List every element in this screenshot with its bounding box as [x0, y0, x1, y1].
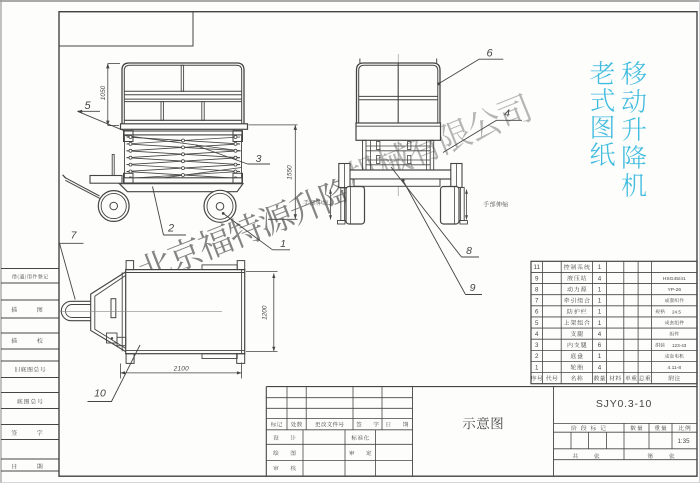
svg-text:5: 5 — [535, 320, 539, 327]
svg-text:123-43: 123-43 — [672, 343, 687, 348]
svg-text:4: 4 — [598, 275, 602, 282]
svg-text:1050: 1050 — [100, 85, 107, 100]
svg-text:6: 6 — [486, 48, 493, 60]
svg-text:4: 4 — [598, 364, 602, 371]
svg-text:6: 6 — [535, 309, 539, 316]
svg-text:5: 5 — [84, 100, 91, 112]
svg-text:1200: 1200 — [262, 305, 269, 320]
svg-text:HSG45/41: HSG45/41 — [663, 276, 686, 282]
svg-text:4: 4 — [598, 331, 602, 338]
svg-text:1:35: 1:35 — [677, 438, 690, 445]
svg-text:3: 3 — [535, 342, 539, 349]
svg-text:1: 1 — [598, 353, 602, 360]
svg-text:24.5: 24.5 — [672, 309, 681, 314]
svg-text:10: 10 — [94, 388, 106, 400]
svg-text:1: 1 — [598, 298, 602, 305]
svg-text:6: 6 — [598, 342, 602, 349]
svg-text:8: 8 — [466, 245, 472, 257]
svg-text:2100: 2100 — [173, 366, 189, 373]
svg-text:2: 2 — [535, 353, 539, 360]
svg-text:1: 1 — [598, 264, 602, 271]
svg-text:2: 2 — [167, 223, 174, 235]
svg-text:SJY0.3-10: SJY0.3-10 — [596, 398, 652, 410]
svg-text:1: 1 — [598, 320, 602, 327]
svg-text:8: 8 — [535, 286, 539, 293]
svg-text:YP-26: YP-26 — [668, 287, 682, 293]
svg-text:7: 7 — [535, 298, 539, 305]
svg-text:1: 1 — [535, 364, 539, 371]
svg-text:1550: 1550 — [286, 165, 293, 180]
svg-text:1: 1 — [598, 286, 602, 293]
svg-text:3: 3 — [256, 153, 262, 165]
svg-text:1: 1 — [598, 309, 602, 316]
svg-text:9: 9 — [535, 275, 539, 282]
svg-text:4: 4 — [535, 331, 539, 338]
svg-text:4: 4 — [504, 108, 510, 120]
svg-text:9: 9 — [470, 282, 476, 294]
svg-text:1: 1 — [280, 238, 286, 250]
svg-text:11: 11 — [533, 264, 540, 271]
svg-text:4.11-8: 4.11-8 — [668, 365, 682, 371]
